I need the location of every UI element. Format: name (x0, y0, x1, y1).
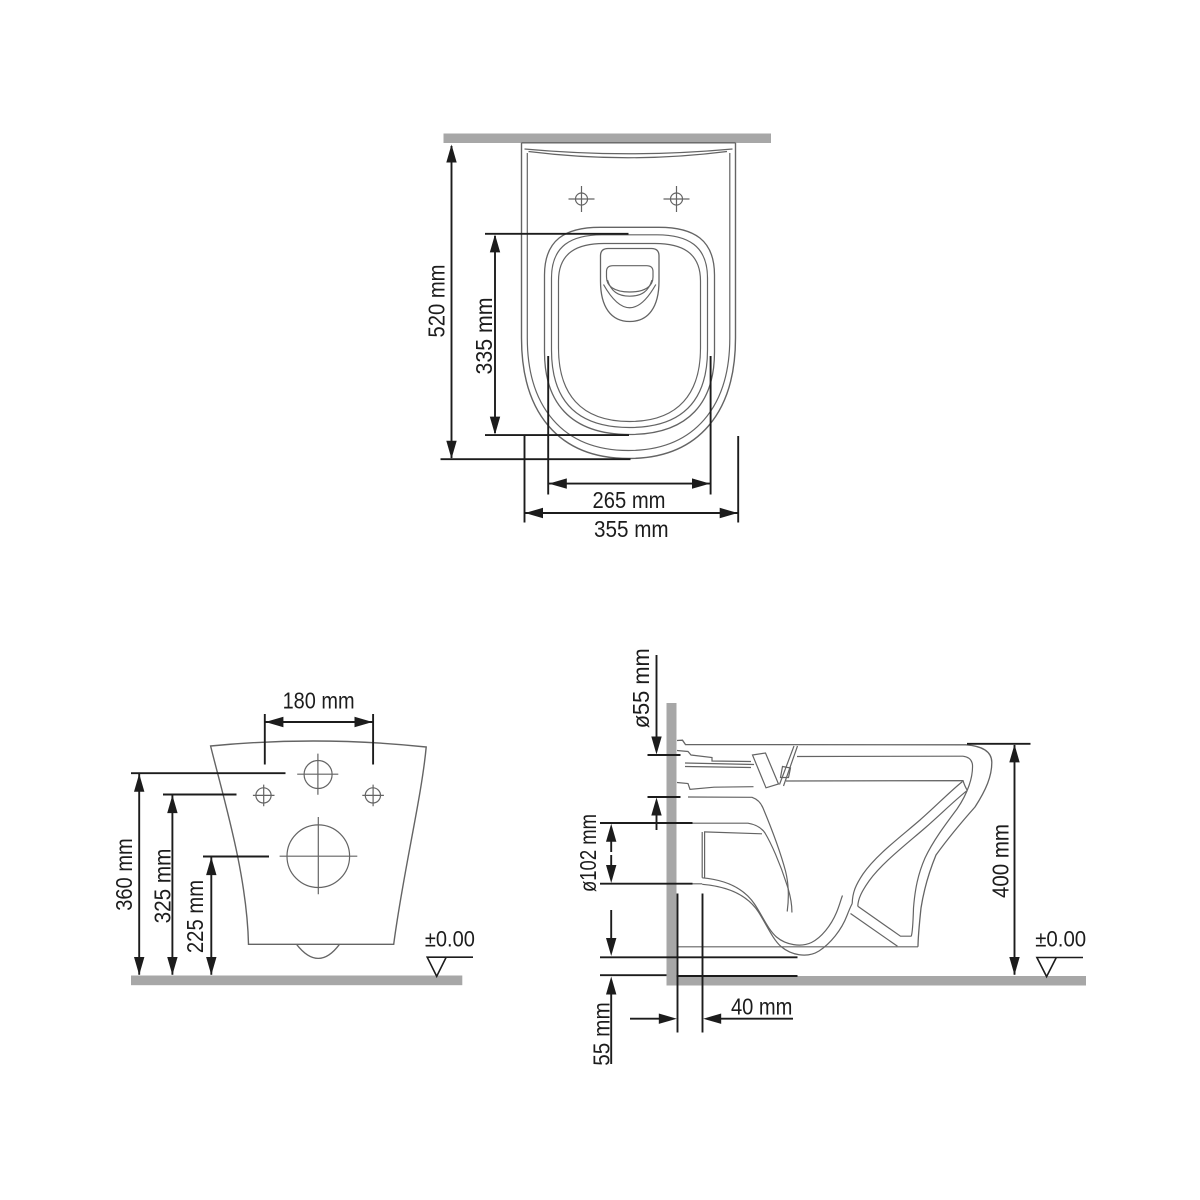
svg-text:40 mm: 40 mm (731, 994, 793, 1020)
svg-text:325 mm: 325 mm (150, 849, 176, 924)
svg-text:400 mm: 400 mm (988, 824, 1014, 898)
svg-text:±0.00: ±0.00 (425, 926, 475, 951)
svg-text:355 mm: 355 mm (594, 516, 669, 542)
svg-text:55 mm: 55 mm (589, 1002, 615, 1066)
svg-text:360 mm: 360 mm (111, 838, 137, 911)
svg-text:225 mm: 225 mm (182, 880, 208, 953)
svg-text:ø55 mm: ø55 mm (628, 648, 654, 728)
svg-text:ø102 mm: ø102 mm (575, 814, 601, 892)
svg-text:265 mm: 265 mm (593, 487, 666, 513)
svg-text:335 mm: 335 mm (471, 298, 497, 375)
svg-text:180 mm: 180 mm (283, 688, 355, 714)
svg-text:520 mm: 520 mm (424, 265, 450, 338)
svg-text:±0.00: ±0.00 (1035, 926, 1086, 951)
